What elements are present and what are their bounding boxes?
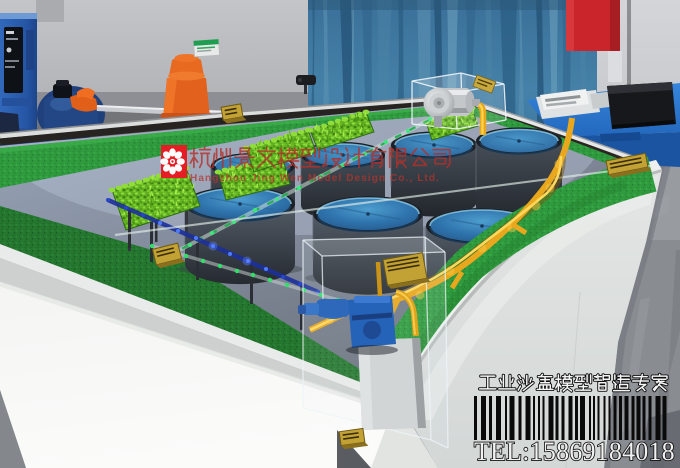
svg-text:TEL:15869184018: TEL:15869184018 xyxy=(474,437,675,466)
svg-text:Hangzhou Jing Wen Model Design: Hangzhou Jing Wen Model Design Co., Ltd. xyxy=(190,173,440,184)
